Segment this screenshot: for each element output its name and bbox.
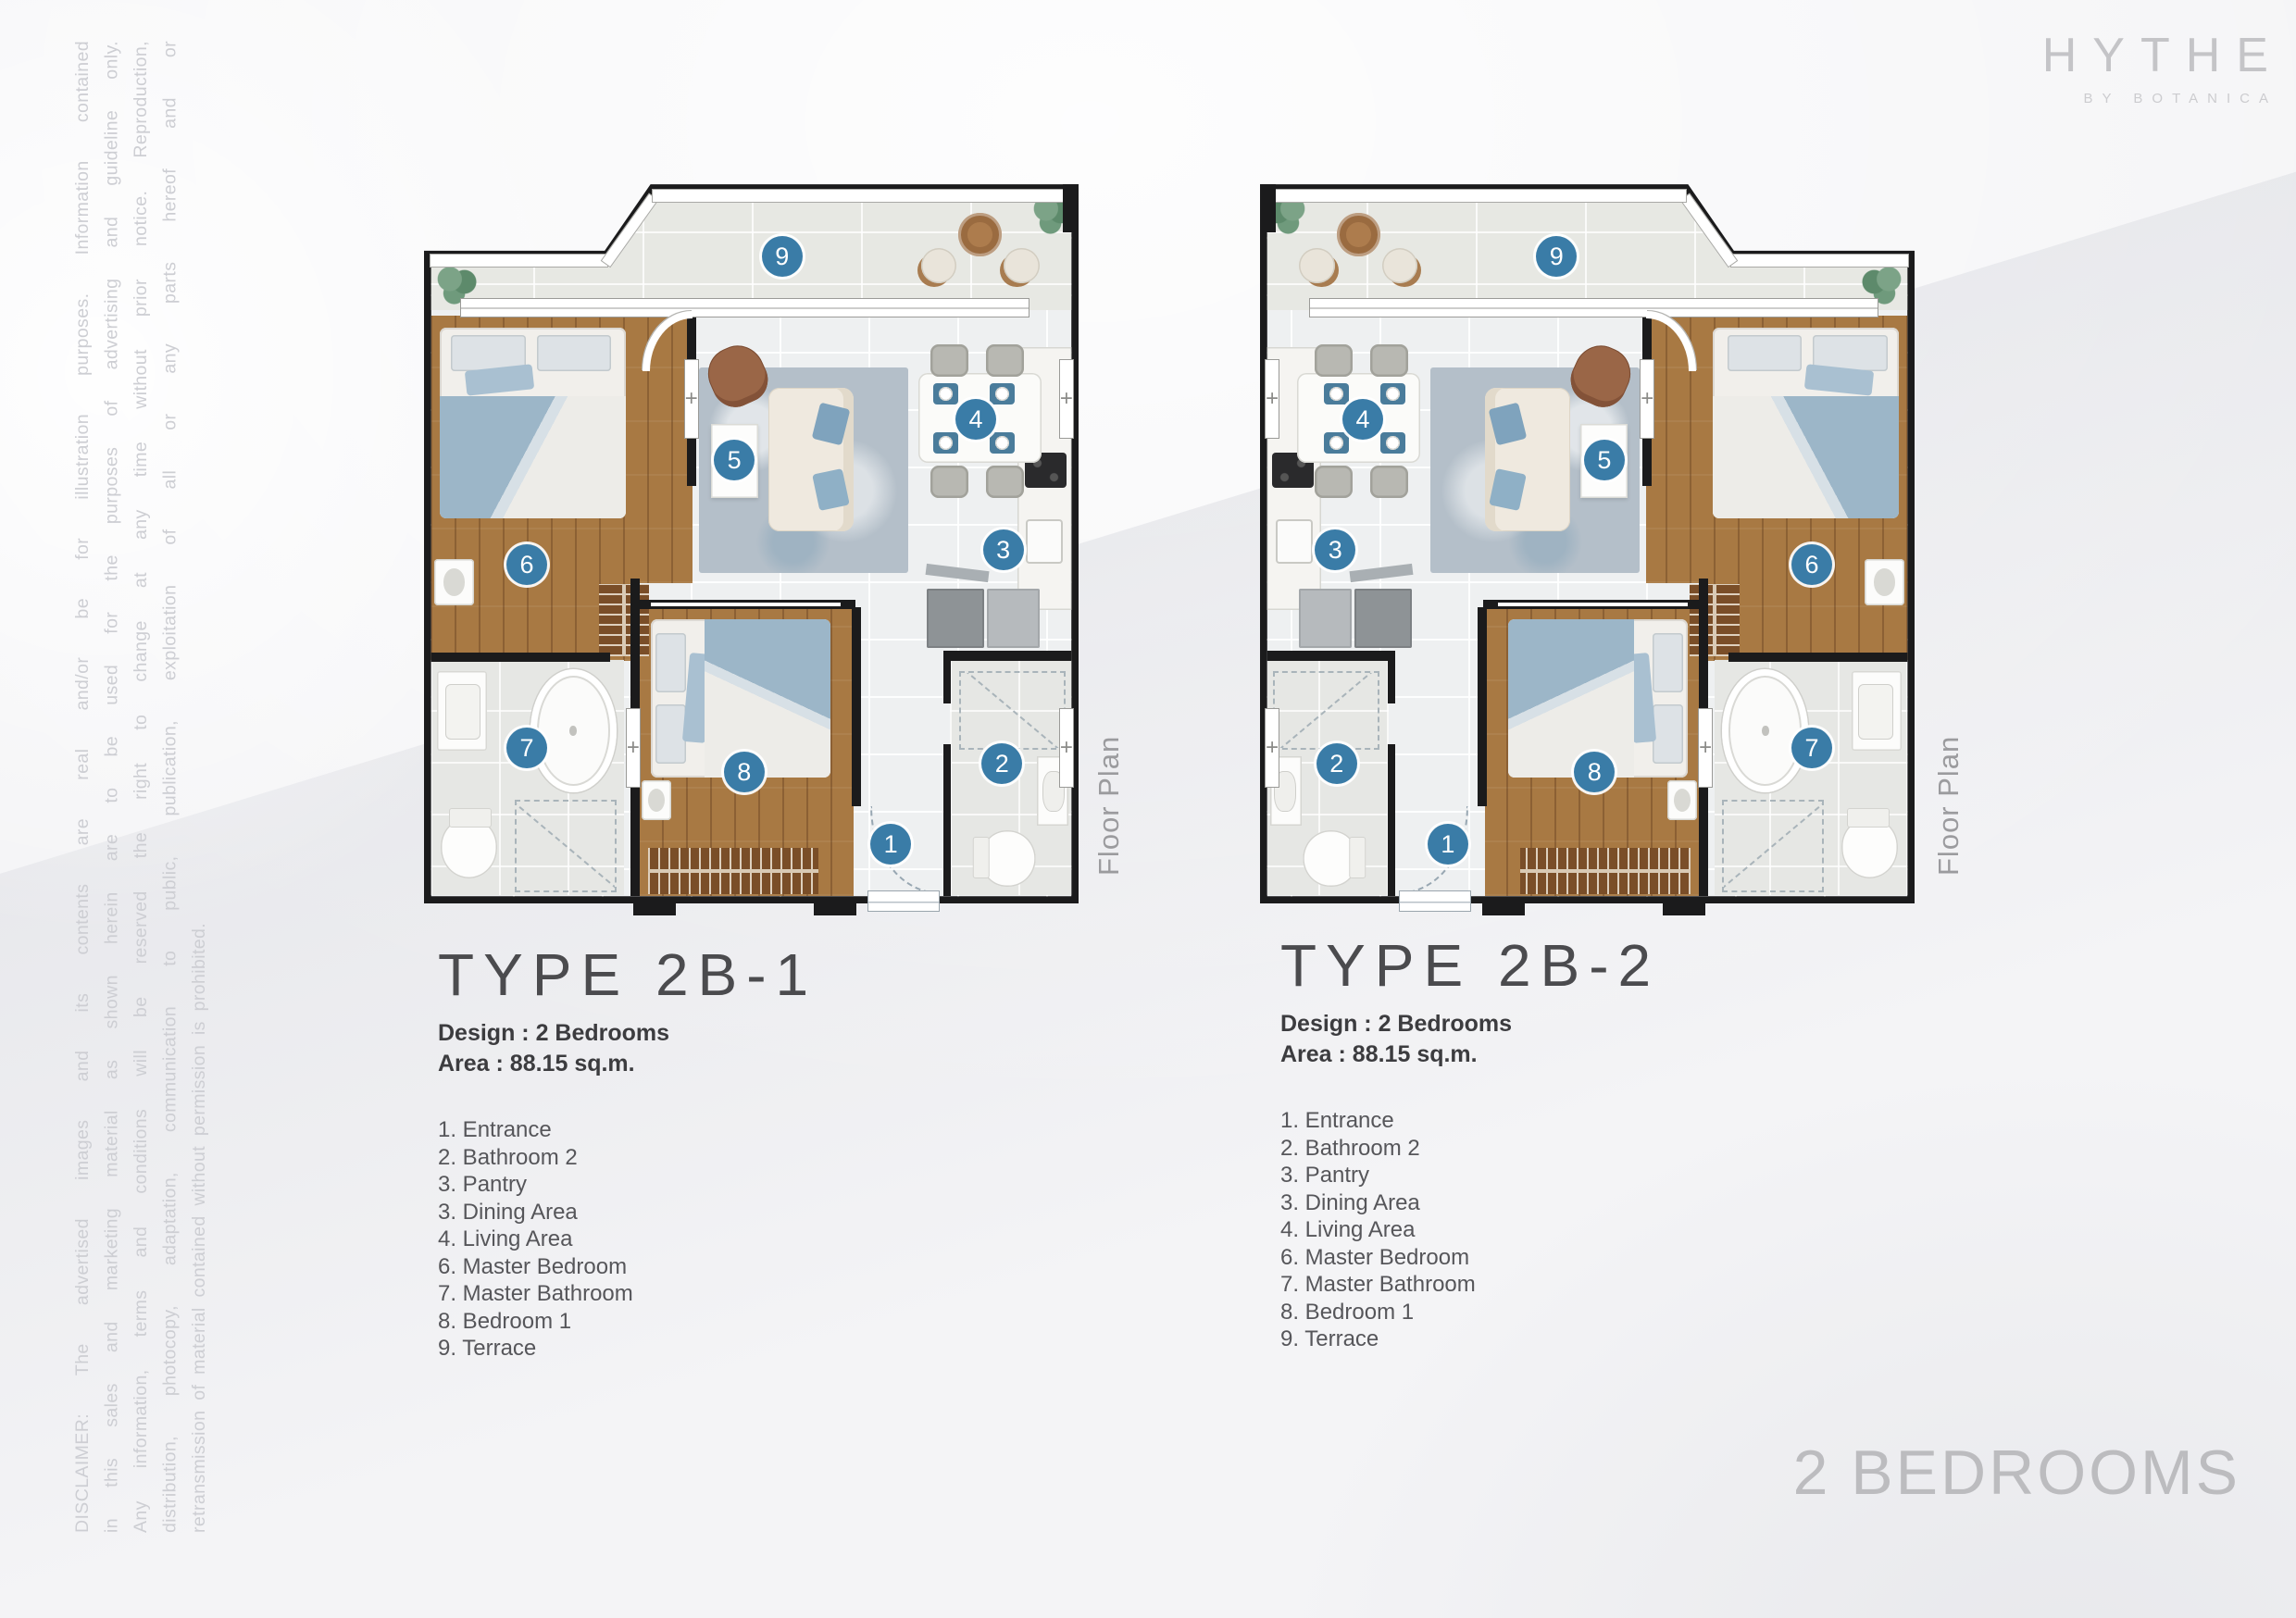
unit-title: TYPE 2B-1 xyxy=(438,940,817,1009)
disclaimer-text: DISCLAIMER: The advertised images and it… xyxy=(69,41,218,1533)
disclaimer-line-4: distribution, photocopy, adaptation, com… xyxy=(156,41,186,1533)
room-marker-7: 7 xyxy=(506,728,547,768)
unit-info-2b-2: TYPE 2B-2 Design : 2 Bedrooms Area : 88.… xyxy=(1280,931,1660,1353)
unit-legend: 1. Entrance2. Bathroom 23. Pantry3. Dini… xyxy=(1280,1107,1660,1353)
room-marker-2: 2 xyxy=(981,743,1022,784)
legend-item: 3. Pantry xyxy=(438,1171,817,1199)
brand-logo: HYTHE BY BOTANICA xyxy=(2042,28,2268,106)
unit-area: Area : 88.15 sq.m. xyxy=(1280,1039,1660,1070)
room-marker-6: 6 xyxy=(1791,544,1832,585)
room-marker-9: 9 xyxy=(1536,236,1577,277)
legend-item: 6. Master Bedroom xyxy=(1280,1244,1660,1272)
floor-plan-side-label: Floor Plan xyxy=(1932,709,1965,876)
legend-item: 2. Bathroom 2 xyxy=(438,1144,817,1172)
legend-item: 3. Dining Area xyxy=(1280,1189,1660,1217)
room-marker-1: 1 xyxy=(870,824,911,865)
legend-item: 1. Entrance xyxy=(1280,1107,1660,1135)
legend-item: 7. Master Bathroom xyxy=(1280,1271,1660,1299)
room-marker-6: 6 xyxy=(506,544,547,585)
legend-item: 4. Living Area xyxy=(1280,1216,1660,1244)
legend-item: 4. Living Area xyxy=(438,1226,817,1253)
plan-markers: 123456789 xyxy=(424,181,1079,903)
brand-name: HYTHE xyxy=(2042,28,2284,83)
brochure-page: HYTHE BY BOTANICA DISCLAIMER: The advert… xyxy=(0,0,2296,1618)
room-marker-8: 8 xyxy=(1574,752,1615,792)
floor-plan-side-label: Floor Plan xyxy=(1092,709,1126,876)
disclaimer-line-5: retransmission of material contained wit… xyxy=(185,41,215,1533)
legend-item: 9. Terrace xyxy=(1280,1326,1660,1353)
legend-item: 6. Master Bedroom xyxy=(438,1253,817,1281)
room-marker-1: 1 xyxy=(1428,824,1468,865)
unit-title: TYPE 2B-2 xyxy=(1280,931,1660,1000)
legend-item: 8. Bedroom 1 xyxy=(438,1308,817,1336)
legend-item: 7. Master Bathroom xyxy=(438,1280,817,1308)
legend-item: 3. Dining Area xyxy=(438,1199,817,1226)
legend-item: 8. Bedroom 1 xyxy=(1280,1299,1660,1326)
disclaimer-line-3: Any information, terms and conditions wi… xyxy=(127,41,156,1533)
plan-markers: 123456789 xyxy=(1260,181,1915,903)
room-marker-7: 7 xyxy=(1791,728,1832,768)
brand-tagline: BY BOTANICA xyxy=(2042,91,2277,106)
room-marker-2: 2 xyxy=(1316,743,1357,784)
room-marker-5: 5 xyxy=(1584,440,1625,480)
unit-info-2b-1: TYPE 2B-1 Design : 2 Bedrooms Area : 88.… xyxy=(438,940,817,1363)
disclaimer-line-1: DISCLAIMER: The advertised images and it… xyxy=(69,41,98,1533)
unit-legend: 1. Entrance2. Bathroom 23. Pantry3. Dini… xyxy=(438,1116,817,1363)
unit-design: Design : 2 Bedrooms xyxy=(438,1018,817,1049)
room-marker-4: 4 xyxy=(1342,399,1383,440)
legend-item: 9. Terrace xyxy=(438,1335,817,1363)
room-marker-8: 8 xyxy=(724,752,765,792)
unit-design: Design : 2 Bedrooms xyxy=(1280,1009,1660,1039)
legend-item: 2. Bathroom 2 xyxy=(1280,1135,1660,1163)
room-marker-9: 9 xyxy=(762,236,803,277)
page-title: 2 BEDROOMS xyxy=(1793,1437,2240,1509)
room-marker-5: 5 xyxy=(714,440,755,480)
room-marker-3: 3 xyxy=(983,529,1024,570)
room-marker-3: 3 xyxy=(1315,529,1355,570)
unit-area: Area : 88.15 sq.m. xyxy=(438,1049,817,1079)
floor-plan-type-2b-2: + + + + 123456789 xyxy=(1260,181,1915,903)
floor-plan-type-2b-1: + + + + 123456789 xyxy=(424,181,1079,903)
legend-item: 3. Pantry xyxy=(1280,1162,1660,1189)
legend-item: 1. Entrance xyxy=(438,1116,817,1144)
room-marker-4: 4 xyxy=(955,399,996,440)
disclaimer-line-2: in this sales and marketing material as … xyxy=(98,41,128,1533)
